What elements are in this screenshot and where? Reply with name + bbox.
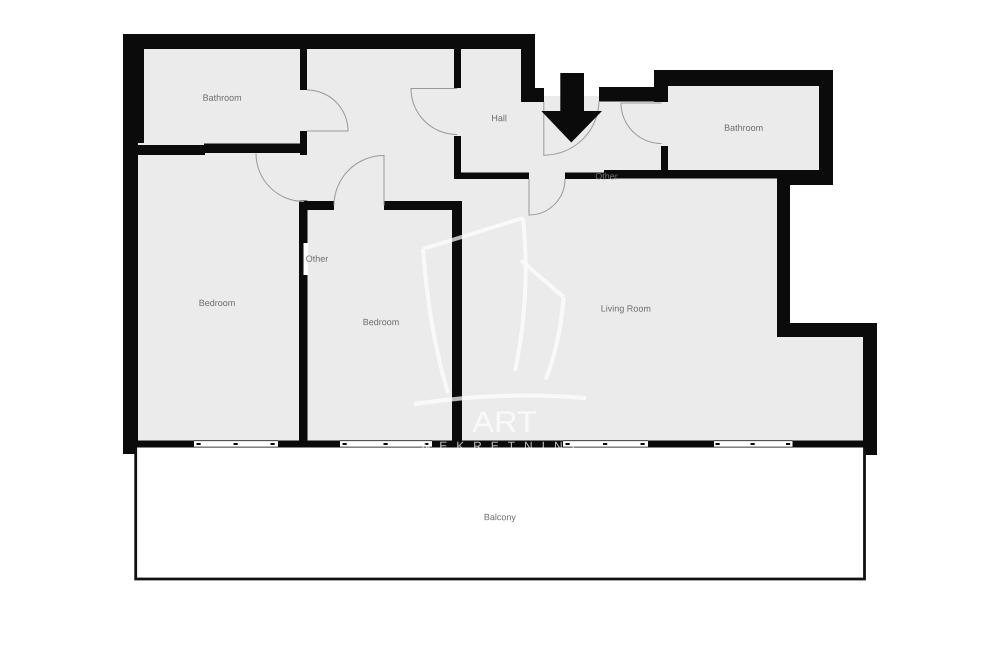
svg-text:Bathroom: Bathroom <box>203 93 242 103</box>
svg-text:ART: ART <box>472 406 537 439</box>
svg-text:Other: Other <box>306 254 329 264</box>
svg-text:Other: Other <box>595 171 618 181</box>
svg-text:Bedroom: Bedroom <box>363 317 400 327</box>
svg-text:Balcony: Balcony <box>484 512 517 522</box>
svg-text:Living Room: Living Room <box>601 304 651 314</box>
svg-text:Bathroom: Bathroom <box>724 123 763 133</box>
svg-text:Bedroom: Bedroom <box>199 298 236 308</box>
svg-text:Hall: Hall <box>491 113 507 123</box>
